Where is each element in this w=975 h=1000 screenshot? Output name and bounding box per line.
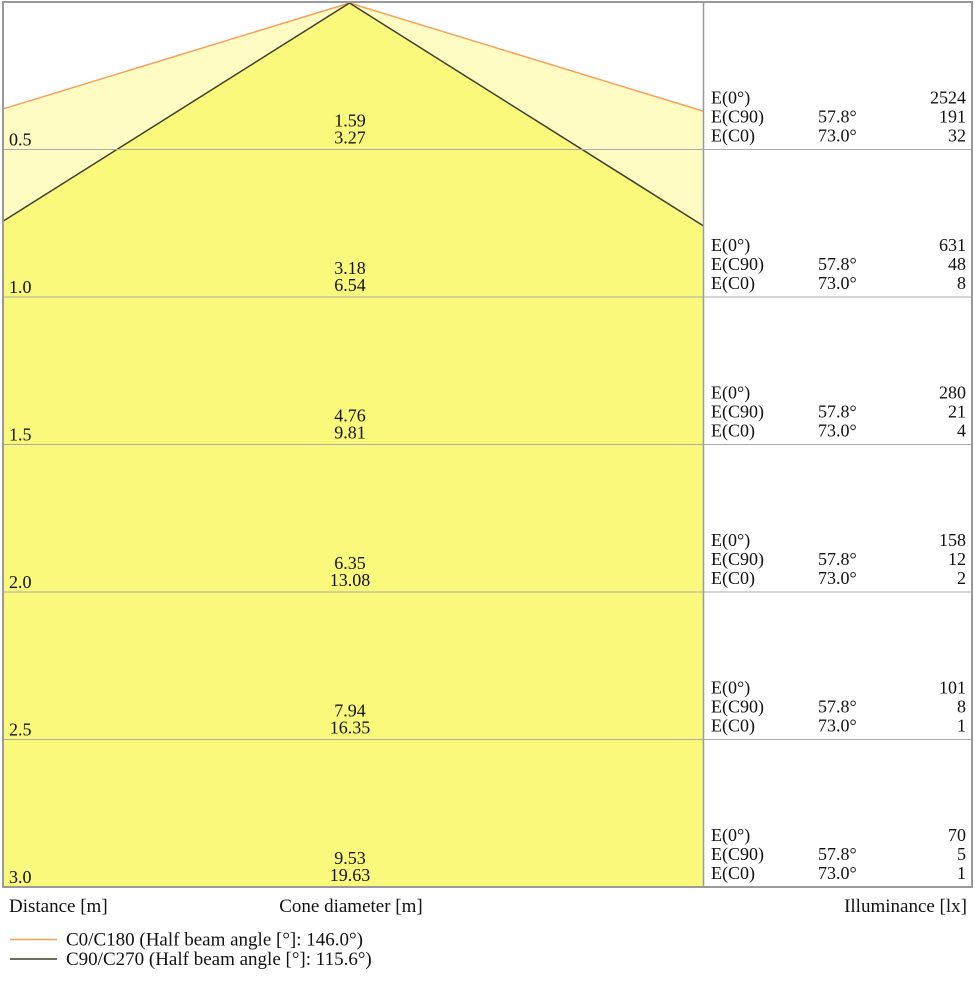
illum-value: 280 (939, 383, 966, 403)
illum-label: E(C0) (711, 126, 755, 147)
illum-angle: 73.0° (818, 421, 857, 441)
illum-label: E(0°) (711, 235, 750, 256)
illum-value: 4 (957, 421, 966, 441)
distance-label: 3.0 (9, 867, 32, 887)
distance-label: 0.5 (9, 130, 32, 150)
cone-diameter-c0: 6.54 (334, 275, 366, 295)
illum-value: 2524 (930, 88, 966, 108)
illum-angle: 73.0° (818, 273, 857, 293)
illum-angle: 57.8° (818, 844, 857, 864)
illum-label: E(C0) (711, 716, 755, 737)
illum-angle: 73.0° (818, 568, 857, 588)
illum-angle: 73.0° (818, 863, 857, 883)
illum-angle: 57.8° (818, 107, 857, 127)
illum-angle: 73.0° (818, 716, 857, 736)
illum-value: 1 (957, 863, 966, 883)
illum-value: 32 (948, 126, 966, 146)
illum-value: 158 (939, 530, 966, 550)
illum-value: 70 (948, 825, 966, 845)
illum-value: 8 (957, 273, 966, 293)
distance-label: 2.0 (9, 572, 32, 592)
illum-value: 1 (957, 716, 966, 736)
cone-diameter-c0: 3.27 (334, 128, 366, 148)
distance-label: 1.5 (9, 425, 32, 445)
illum-angle: 57.8° (818, 697, 857, 717)
illum-value: 101 (939, 678, 966, 698)
illum-value: 21 (948, 402, 966, 422)
illum-value: 12 (948, 549, 966, 569)
illum-label: E(C0) (711, 421, 755, 442)
cone-diameter-c0: 19.63 (330, 865, 371, 885)
illum-label: E(C90) (711, 107, 764, 128)
distance-label: 1.0 (9, 277, 32, 297)
illum-label: E(0°) (711, 530, 750, 551)
illum-angle: 73.0° (818, 126, 857, 146)
cone-diameter-c0: 9.81 (334, 423, 366, 443)
illum-label: E(C90) (711, 697, 764, 718)
illum-label: E(C90) (711, 549, 764, 570)
illum-value: 2 (957, 568, 966, 588)
illum-angle: 57.8° (818, 254, 857, 274)
illum-label: E(C90) (711, 402, 764, 423)
illum-label: E(C0) (711, 273, 755, 294)
illum-value: 8 (957, 697, 966, 717)
distance-axis-label: Distance [m] (9, 896, 108, 917)
illum-value: 631 (939, 235, 966, 255)
illum-angle: 57.8° (818, 549, 857, 569)
illum-label: E(0°) (711, 678, 750, 699)
illum-label: E(0°) (711, 88, 750, 109)
illuminance-axis-label: Illuminance [lx] (844, 896, 967, 917)
illum-value: 48 (948, 254, 966, 274)
illum-angle: 57.8° (818, 402, 857, 422)
light-cone-diagram: 0.5 1.59 3.27 E(0°) 2524 E(C90) 57.8° 19… (0, 0, 975, 1000)
illum-value: 5 (957, 844, 966, 864)
illum-label: E(C0) (711, 863, 755, 884)
illum-label: E(C0) (711, 568, 755, 589)
cone-diameter-axis-label: Cone diameter [m] (279, 896, 423, 917)
distance-label: 2.5 (9, 720, 32, 740)
cone-diameter-c0: 13.08 (330, 570, 371, 590)
illum-label: E(C90) (711, 254, 764, 275)
illum-label: E(C90) (711, 844, 764, 865)
cone-diameter-c0: 16.35 (330, 718, 371, 738)
illum-label: E(0°) (711, 825, 750, 846)
legend-label-c0: C0/C180 (Half beam angle [°]: 146.0°) (66, 930, 363, 951)
legend-label-c90: C90/C270 (Half beam angle [°]: 115.6°) (66, 949, 372, 970)
illum-label: E(0°) (711, 383, 750, 404)
cone-diagram-svg: 0.5 1.59 3.27 E(0°) 2524 E(C90) 57.8° 19… (0, 0, 975, 1000)
illum-value: 191 (939, 107, 966, 127)
